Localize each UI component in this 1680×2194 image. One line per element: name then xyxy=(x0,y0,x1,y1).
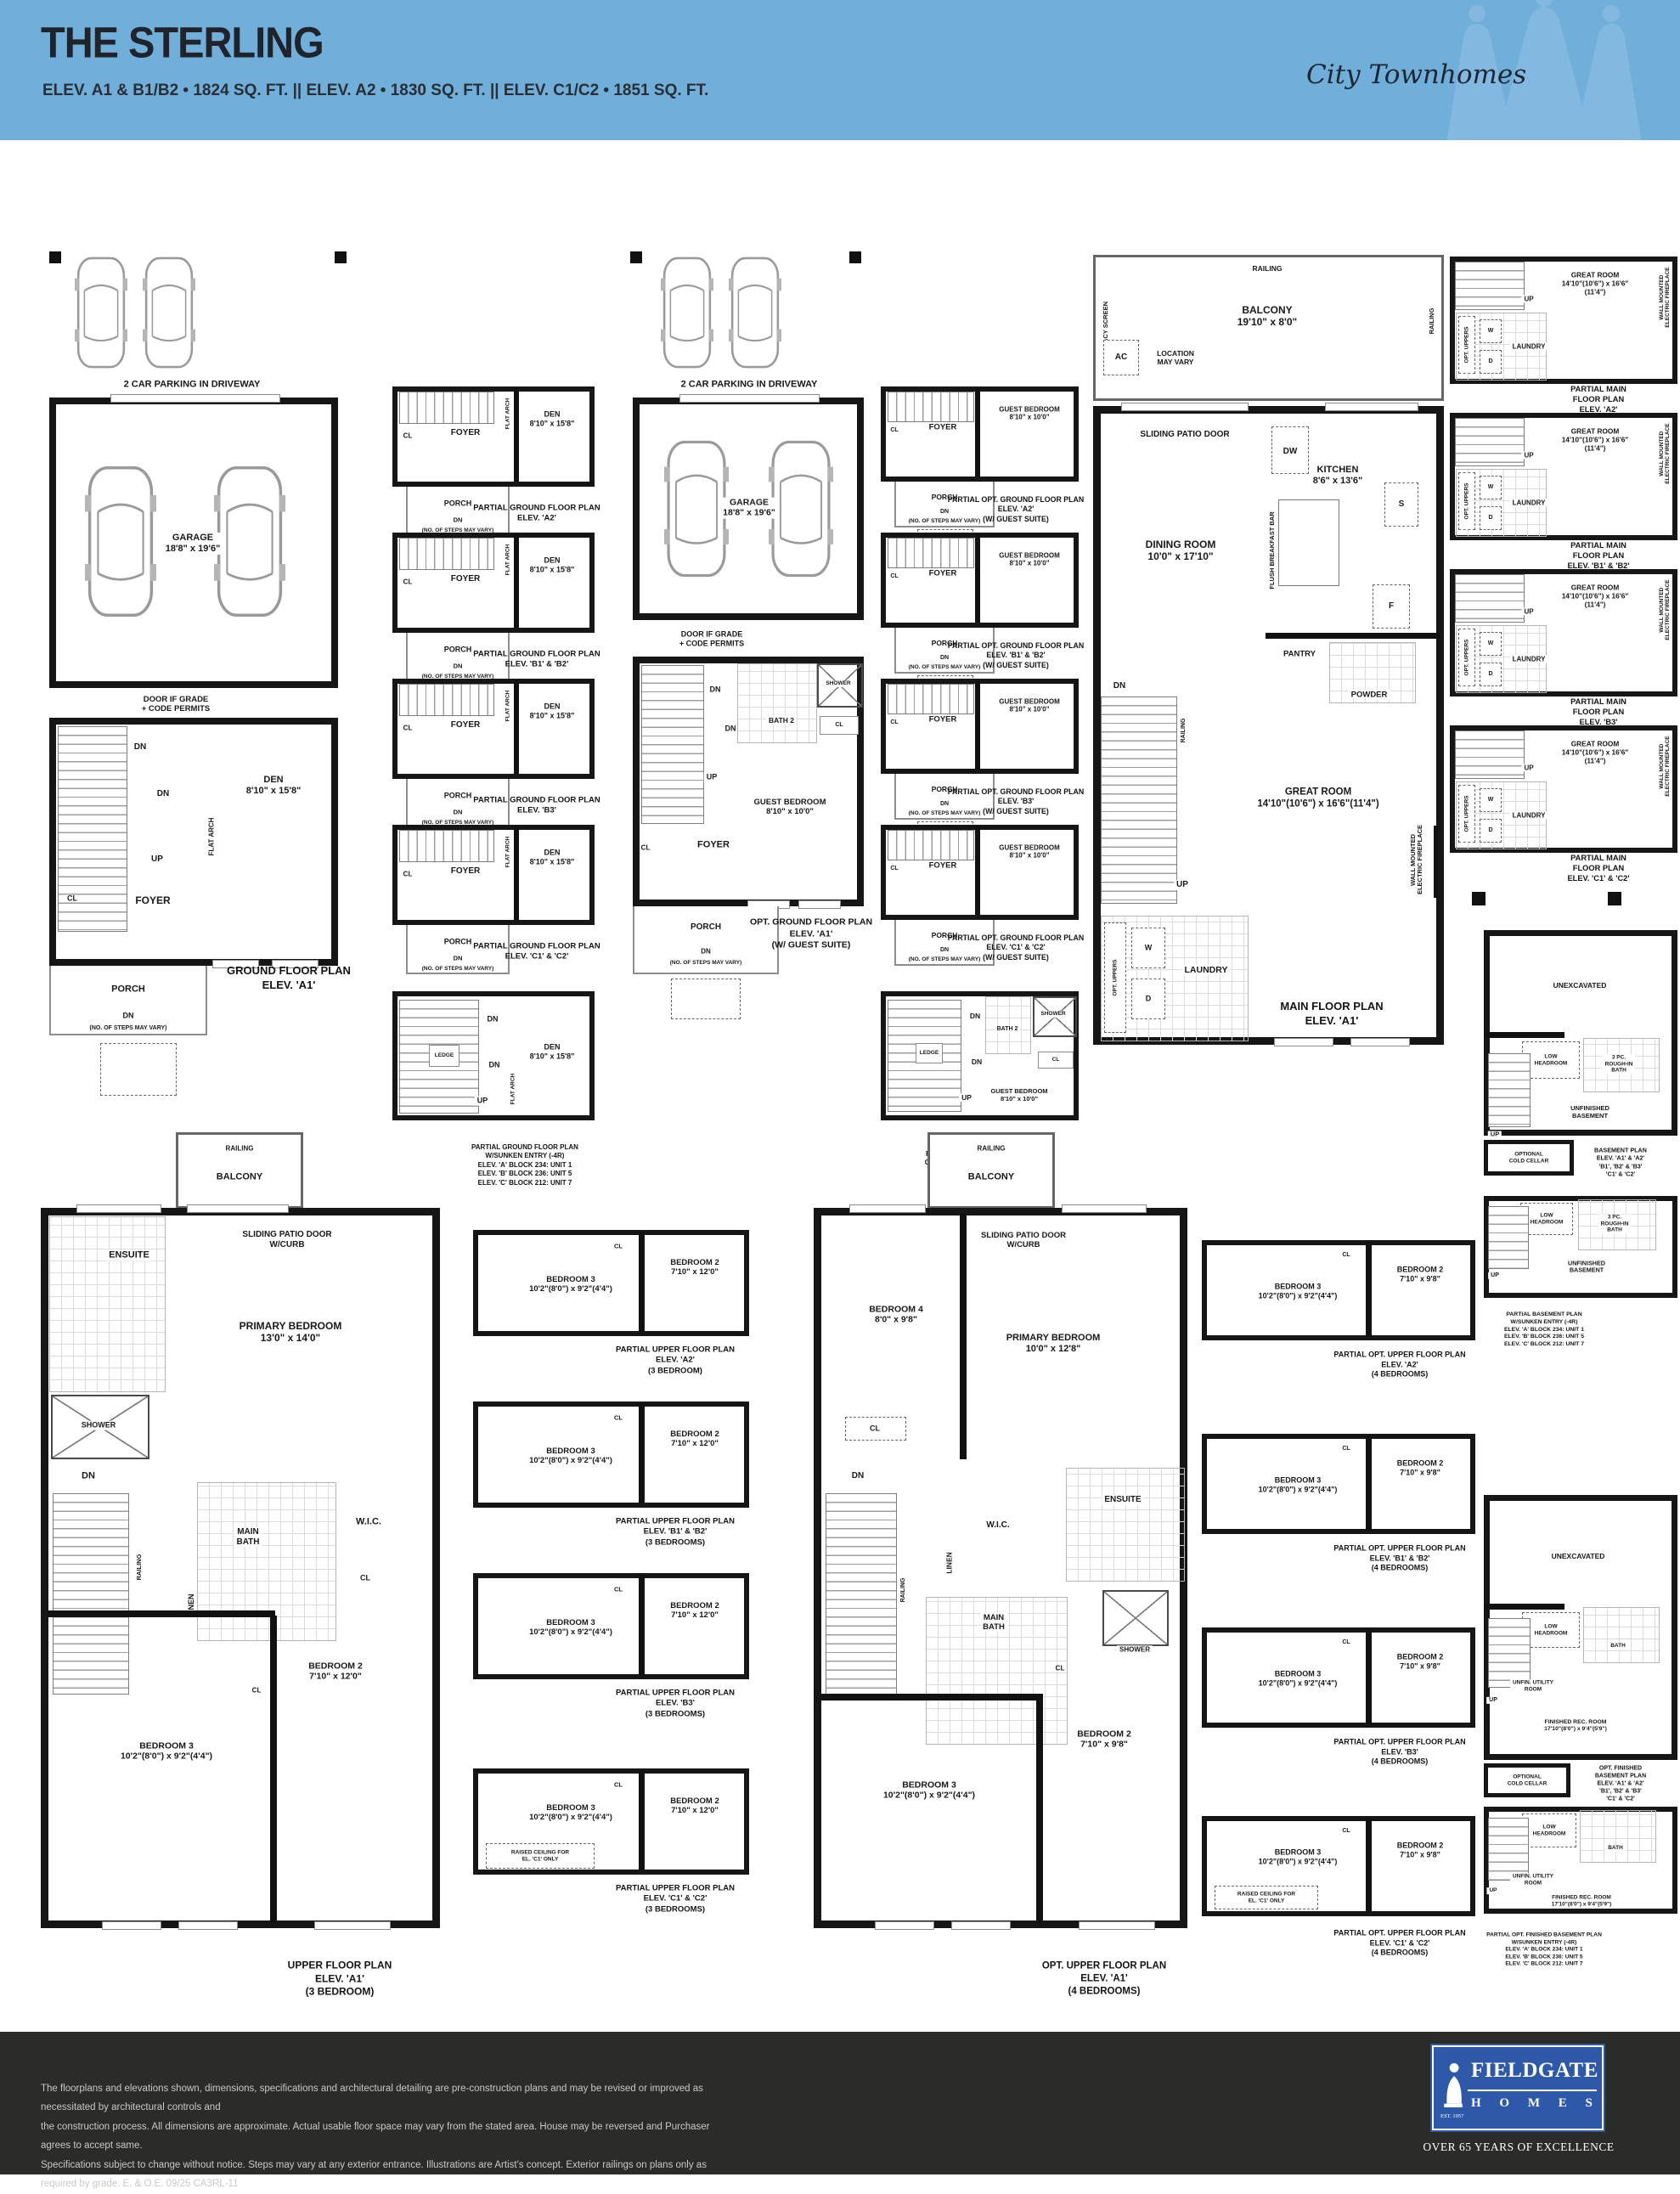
stairs xyxy=(399,830,494,862)
room-label: CL xyxy=(67,894,77,904)
room-label: BEDROOM 3 10'2"(8'0") x 9'2"(4'4") xyxy=(1259,1282,1338,1300)
room-label: UNEXCAVATED xyxy=(1552,1552,1605,1560)
room-label: GUEST BEDROOM 8'10" x 10'0" xyxy=(999,844,1060,860)
room-label: RAISED CEILING FOR EL. 'C1' ONLY xyxy=(1237,1891,1295,1904)
wall xyxy=(514,534,519,628)
room-label: GARAGE 18'8" x 19'6" xyxy=(163,533,223,555)
entry-steps xyxy=(100,1043,177,1096)
room-label: CL xyxy=(403,870,413,877)
plan-title: PARTIAL OPT. UPPER FLOOR PLAN ELEV. 'B1'… xyxy=(1333,1543,1465,1573)
room-label: DN xyxy=(487,1061,503,1070)
room-label: FOYER xyxy=(929,568,957,578)
corner-mark xyxy=(1608,892,1621,905)
room-label: CL xyxy=(641,843,651,851)
room-label: CL xyxy=(1342,1828,1350,1835)
room-label: DOOR IF GRADE + CODE PERMITS xyxy=(142,695,211,713)
room-label: UNFINISHED BASEMENT xyxy=(1568,1261,1605,1275)
room-label: LAUNDRY xyxy=(1182,965,1231,975)
room-label: GREAT ROOM 14'10"(10'6") x 16'6"(11'4") xyxy=(1553,271,1638,296)
room-label: CL xyxy=(1342,1639,1350,1646)
room-label: LAUNDRY xyxy=(1510,655,1548,663)
wall xyxy=(639,1403,645,1503)
room-label: SHOWER xyxy=(1117,1645,1153,1653)
room-label: (NO. OF STEPS MAY VARY) xyxy=(89,1025,166,1032)
room-label: RAILING xyxy=(226,1144,254,1152)
car-icon xyxy=(769,416,833,601)
stairs xyxy=(53,1493,129,1695)
room-label: DEN 8'10" x 15'8" xyxy=(530,409,575,427)
room-label: PORCH xyxy=(444,792,472,801)
room-label: CL xyxy=(403,431,413,439)
bath-floor xyxy=(1583,1607,1660,1663)
stairs xyxy=(1488,1206,1529,1269)
stairs xyxy=(1488,1618,1531,1688)
room-label: FLAT ARCH xyxy=(209,818,217,856)
room-label: WALL MOUNTED ELECTRIC FIREPLACE xyxy=(1659,579,1671,640)
room-label: BEDROOM 3 10'2"(8'0") x 9'2"(4'4") xyxy=(1259,1847,1338,1865)
room-label: BEDROOM 2 7'10" x 12'0" xyxy=(670,1430,719,1448)
room-label: LEDGE xyxy=(435,1052,454,1059)
room-label: PORCH xyxy=(444,938,472,947)
wall xyxy=(1036,1694,1043,1923)
wall xyxy=(1366,1629,1372,1724)
fireplace xyxy=(1434,826,1438,898)
room-label: FOYER xyxy=(697,840,730,851)
wall xyxy=(270,1616,277,1923)
room-label: PORCH xyxy=(111,984,145,995)
stairs xyxy=(1101,697,1177,904)
room-label: D xyxy=(1143,995,1154,1004)
bath-floor xyxy=(737,663,817,743)
room-label: BEDROOM 2 7'10" x 9'8" xyxy=(1397,1265,1444,1283)
room-label: RAISED CEILING FOR EL. 'C1' ONLY xyxy=(511,1849,569,1862)
room-label: FLAT ARCH xyxy=(505,691,510,721)
room-label: FOYER xyxy=(929,714,957,724)
room-label: DEN 8'10" x 15'8" xyxy=(530,556,575,573)
room-label: UP xyxy=(1488,1272,1502,1279)
plan-title: PARTIAL OPT. UPPER FLOOR PLAN ELEV. 'A2'… xyxy=(1333,1350,1465,1379)
room-label: RAILING xyxy=(1253,264,1283,273)
plan-partial-opt-upper-b1-b2 xyxy=(1202,1434,1475,1534)
room-label: UNFIN. UTILITY ROOM xyxy=(1510,1873,1556,1886)
room-label: SLIDING PATIO DOOR xyxy=(1140,430,1229,440)
room-label: UP xyxy=(1174,880,1191,890)
wall xyxy=(975,680,980,769)
room-label: UP xyxy=(704,773,720,782)
car-icon xyxy=(664,416,729,601)
wall xyxy=(639,1770,645,1870)
room-label: CL xyxy=(1052,1057,1060,1063)
room-label: SLIDING PATIO DOOR W/CURB xyxy=(242,1230,331,1250)
room-label: W xyxy=(1486,797,1497,804)
room-label: BATH 2 xyxy=(995,1026,1021,1033)
plan-title: PARTIAL OPT. GROUND FLOOR PLAN ELEV. 'B1… xyxy=(948,641,1084,670)
wall xyxy=(514,388,519,482)
wall xyxy=(514,680,519,774)
wall xyxy=(975,388,980,477)
room-label: WALL MOUNTED ELECTRIC FIREPLACE xyxy=(1659,423,1671,483)
room-label: BEDROOM 3 10'2"(8'0") x 9'2"(4'4") xyxy=(121,1741,212,1763)
wall xyxy=(1366,1242,1372,1337)
plan-partial-opt-upper-b3 xyxy=(1202,1627,1475,1728)
wall xyxy=(1366,1435,1372,1531)
room-label: MAIN BATH xyxy=(980,1613,1007,1632)
room-label: UP xyxy=(1521,295,1536,302)
ensuite-floor xyxy=(1066,1468,1185,1582)
room-label: DN xyxy=(701,947,711,955)
room-label: SHOWER xyxy=(79,1421,119,1430)
window xyxy=(1274,1038,1333,1046)
room-label: DN xyxy=(849,1471,866,1481)
car-icon xyxy=(661,253,713,372)
room-label: 3 PC. ROUGH-IN BATH xyxy=(1603,1055,1636,1074)
room-label: BEDROOM 2 7'10" x 12'0" xyxy=(670,1258,719,1277)
plan-title: PARTIAL MAIN FLOOR PLAN ELEV. 'B1' & 'B2… xyxy=(1558,540,1639,571)
room-label: DN xyxy=(454,809,463,817)
room-label: GUEST BEDROOM 8'10" x 10'0" xyxy=(754,798,826,816)
room-label: BEDROOM 3 10'2"(8'0") x 9'2"(4'4") xyxy=(529,1275,612,1294)
room-label: FLAT ARCH xyxy=(505,544,510,575)
plan-title: PARTIAL UPPER FLOOR PLAN ELEV. 'B1' & 'B… xyxy=(616,1516,735,1548)
plan-title: OPT. UPPER FLOOR PLAN ELEV. 'A1' (4 BEDR… xyxy=(1042,1960,1166,1999)
room-label: CL xyxy=(614,1415,623,1423)
plan-title: PARTIAL UPPER FLOOR PLAN ELEV. 'C1' & 'C… xyxy=(616,1883,735,1915)
stairs xyxy=(399,392,494,424)
room-label: CL xyxy=(1342,1252,1350,1259)
plan-title: PARTIAL OPT. UPPER FLOOR PLAN ELEV. 'C1'… xyxy=(1333,1928,1465,1958)
stairs xyxy=(1455,418,1525,466)
room-label: CL xyxy=(614,1587,623,1594)
room-label: FOYER xyxy=(929,860,957,870)
room-label: BALCONY xyxy=(968,1172,1014,1183)
room-label: FINISHED REC. ROOM 17'10"(8'0") x 9'4"(5… xyxy=(1552,1894,1612,1907)
car-icon xyxy=(214,425,285,658)
room-label: UP xyxy=(1488,1131,1502,1139)
room-label: FLAT ARCH xyxy=(510,1074,516,1104)
room-label: SHOWER xyxy=(1038,1011,1068,1018)
room-label: CL xyxy=(870,1424,880,1434)
room-label: GREAT ROOM 14'10"(10'6") x 16'6"(11'4") xyxy=(1257,787,1378,809)
room-label: DN xyxy=(123,1012,134,1021)
island xyxy=(1278,499,1339,586)
room-label: DOOR IF GRADE + CODE PERMITS xyxy=(677,629,747,647)
plan-title: PARTIAL OPT. GROUND FLOOR PLAN ELEV. 'A2… xyxy=(948,495,1084,524)
room-label: LAUNDRY xyxy=(1510,499,1548,506)
room-label: FOYER xyxy=(451,574,480,584)
room-label: LAUNDRY xyxy=(1510,342,1548,350)
room-label: FOYER xyxy=(451,866,480,877)
corner-mark xyxy=(335,251,347,263)
wall xyxy=(639,1232,645,1332)
plan-partial-opt-upper-a2 xyxy=(1202,1240,1475,1340)
wall xyxy=(1266,633,1440,639)
plan-title: PARTIAL BASEMENT PLAN W/SUNKEN ENTRY (-4… xyxy=(1504,1311,1584,1349)
room-label: ENSUITE xyxy=(106,1250,152,1261)
plan-title: BASEMENT PLAN ELEV. 'A1' & 'A2' 'B1', 'B… xyxy=(1594,1146,1647,1177)
plan-title: PARTIAL GROUND FLOOR PLAN ELEV. 'B3' xyxy=(473,796,600,817)
corner-mark xyxy=(49,251,61,263)
room-label: D xyxy=(1486,671,1495,678)
room-label: UP xyxy=(959,1093,974,1102)
plan-title: PARTIAL UPPER FLOOR PLAN ELEV. 'A2' (3 B… xyxy=(616,1345,735,1376)
room-label: LOCATION MAY VARY xyxy=(1157,349,1194,366)
plan-title: OPT. GROUND FLOOR PLAN ELEV. 'A1' (W/ GU… xyxy=(750,917,872,952)
room-label: GREAT ROOM 14'10"(10'6") x 16'6"(11'4") xyxy=(1553,740,1638,764)
room-label: OPT. UPPERS xyxy=(1463,796,1469,832)
room-label: DN xyxy=(723,725,739,734)
room-label: UP xyxy=(1521,607,1536,615)
logo-est: EST. 1957 xyxy=(1440,2113,1463,2119)
room-label: UNFINISHED BASEMENT xyxy=(1570,1105,1610,1120)
room-label: BATH 2 xyxy=(766,716,797,725)
room-label: DINING ROOM 10'0" x 17'10" xyxy=(1146,539,1216,562)
wall xyxy=(639,1575,645,1675)
room-label: BEDROOM 2 7'10" x 9'8" xyxy=(1397,1841,1444,1858)
room-label: LOW HEADROOM xyxy=(1531,1824,1569,1836)
room-label: GUEST BEDROOM 8'10" x 10'0" xyxy=(999,406,1060,422)
room-label: RAILING xyxy=(1181,719,1187,743)
plan-title: PARTIAL GROUND FLOOR PLAN ELEV. 'B1' & '… xyxy=(473,650,600,671)
room-label: DEN 8'10" x 15'8" xyxy=(530,702,575,719)
room-label: PRIMARY BEDROOM 10'0" x 12'8" xyxy=(1006,1333,1101,1355)
window xyxy=(849,1204,926,1213)
room-label: BALCONY 19'10" x 8'0" xyxy=(1237,304,1297,328)
plan-title: PARTIAL OPT. FINISHED BASEMENT PLAN W/SU… xyxy=(1486,1932,1602,1969)
room-label: PANTRY xyxy=(1281,649,1318,658)
room-label: 2 CAR PARKING IN DRIVEWAY xyxy=(124,380,261,391)
room-label: GARAGE 18'8" x 19'6" xyxy=(720,498,778,519)
entry-steps xyxy=(671,979,741,1019)
floorplan-brochure-page: { "header": { "title": "THE STERLING", "… xyxy=(0,0,1680,2174)
room-label: FINISHED REC. ROOM 17'10"(8'0") x 9'4"(5… xyxy=(1544,1719,1607,1733)
disclaimer-text: The floorplans and elevations shown, dim… xyxy=(41,2079,720,2194)
room-label: DN xyxy=(132,742,149,753)
shower xyxy=(1102,1590,1169,1646)
room-label: D xyxy=(1486,515,1495,522)
room-label: BEDROOM 2 7'10" x 12'0" xyxy=(308,1661,363,1683)
room-label: UNFIN. UTILITY ROOM xyxy=(1510,1679,1556,1692)
window xyxy=(951,1921,1011,1930)
room-label: BEDROOM 3 10'2"(8'0") x 9'2"(4'4") xyxy=(1259,1475,1338,1493)
stairs xyxy=(888,684,974,714)
room-label: BEDROOM 3 10'2"(8'0") x 9'2"(4'4") xyxy=(529,1447,612,1465)
room-label: CL xyxy=(1342,1446,1350,1452)
wall xyxy=(1484,1032,1564,1038)
room-label: DN xyxy=(155,789,172,799)
ensuite-floor xyxy=(49,1216,166,1392)
room-label: W xyxy=(1142,944,1155,953)
room-label: UNEXCAVATED xyxy=(1553,981,1607,990)
plan-title: PARTIAL OPT. GROUND FLOOR PLAN ELEV. 'C1… xyxy=(948,933,1084,962)
room-label: DN xyxy=(454,956,463,963)
room-label: BEDROOM 2 7'10" x 9'8" xyxy=(1397,1652,1444,1670)
plan-title: OPT. FINISHED BASEMENT PLAN ELEV. 'A1' &… xyxy=(1591,1764,1650,1802)
plan-title: MAIN FLOOR PLAN ELEV. 'A1' xyxy=(1280,1000,1383,1029)
car-icon xyxy=(729,253,781,372)
room-label: FOYER xyxy=(451,720,480,730)
room-label: CL xyxy=(835,722,843,729)
corner-mark xyxy=(849,251,861,263)
room-label: (NO. OF STEPS MAY VARY) xyxy=(422,966,494,973)
room-label: LOW HEADROOM xyxy=(1528,1212,1566,1225)
room-label: GREAT ROOM 14'10"(10'6") x 16'6"(11'4") xyxy=(1553,584,1638,608)
room-label: PORCH xyxy=(444,499,472,509)
room-label: BATH xyxy=(1605,1845,1626,1852)
room-label: D xyxy=(1486,358,1495,365)
room-label: FLAT ARCH xyxy=(505,398,510,429)
room-label: OPT. UPPERS xyxy=(1463,640,1469,676)
window xyxy=(1121,403,1249,411)
room-label: CL xyxy=(890,573,898,580)
room-label: BEDROOM 2 7'10" x 12'0" xyxy=(670,1796,719,1815)
window xyxy=(178,1921,238,1930)
stairs xyxy=(1488,1818,1529,1881)
room-label: DEN 8'10" x 15'8" xyxy=(246,775,302,797)
room-label: SHOWER xyxy=(823,680,853,687)
room-label: FLUSH BREAKFAST BAR xyxy=(1269,511,1276,589)
room-label: BATH xyxy=(1608,1643,1628,1650)
stairs xyxy=(888,538,974,568)
room-label: CL xyxy=(890,719,898,726)
wall xyxy=(1484,1604,1564,1610)
room-label: CL xyxy=(1056,1664,1065,1672)
plan-title: PARTIAL MAIN FLOOR PLAN ELEV. 'A2' xyxy=(1558,384,1639,415)
room-label: LEDGE xyxy=(920,1050,939,1057)
room-label: DN xyxy=(79,1471,98,1482)
room-label: W.I.C. xyxy=(356,1517,381,1528)
room-label: CL xyxy=(614,1782,623,1790)
stairs xyxy=(641,665,704,824)
room-label: DW xyxy=(1281,447,1300,457)
room-label: BALCONY xyxy=(217,1172,262,1183)
window xyxy=(798,900,841,909)
room-label: KITCHEN 8'6" x 13'6" xyxy=(1313,465,1362,487)
room-label: DN xyxy=(454,517,463,525)
room-label: RAILING xyxy=(1429,308,1435,335)
room-label: ENSUITE xyxy=(1102,1495,1143,1505)
garage-door xyxy=(110,394,280,403)
wall xyxy=(975,534,980,623)
room-label: CL xyxy=(360,1574,370,1583)
room-label: PRIMARY BEDROOM 13'0" x 14'0" xyxy=(240,1320,342,1344)
room-label: FOYER xyxy=(929,422,957,431)
room-label: DN xyxy=(1111,681,1128,691)
plan-title: PARTIAL UPPER FLOOR PLAN ELEV. 'B3' (3 B… xyxy=(616,1688,735,1719)
room-label: OPT. UPPERS xyxy=(1463,327,1469,364)
room-label: RAILING xyxy=(978,1144,1006,1152)
stairs xyxy=(1488,1053,1531,1127)
room-label: OPT. UPPERS xyxy=(1112,960,1118,996)
room-label: LAUNDRY xyxy=(1510,811,1548,819)
window xyxy=(314,1921,391,1930)
room-label: PORCH xyxy=(444,646,472,655)
plan-title: PARTIAL GROUND FLOOR PLAN W/SUNKEN ENTRY… xyxy=(471,1143,578,1187)
fieldgate-logo: FIELDGATE H O M E S EST. 1957 xyxy=(1432,2045,1604,2130)
header-banner: THE STERLING ELEV. A1 & B1/B2 • 1824 SQ.… xyxy=(0,0,1680,140)
wall xyxy=(514,826,519,920)
corner-mark xyxy=(1472,892,1486,905)
garage-door xyxy=(679,394,820,403)
room-label: F xyxy=(1389,601,1394,612)
wall xyxy=(960,1213,967,1459)
room-label: D xyxy=(1486,827,1495,834)
window xyxy=(1079,1921,1155,1930)
room-label: (NO. OF STEPS MAY VARY) xyxy=(670,960,742,967)
room-label: DEN 8'10" x 15'8" xyxy=(530,848,575,866)
plan-title: PARTIAL OPT. UPPER FLOOR PLAN ELEV. 'B3'… xyxy=(1333,1737,1465,1767)
room-label: OPT. UPPERS xyxy=(1463,483,1469,520)
logo-divider xyxy=(1468,2090,1597,2091)
room-label: WALL MOUNTED ELECTRIC FIREPLACE xyxy=(1410,825,1424,894)
wall xyxy=(48,1610,275,1617)
elevation-subtitle: ELEV. A1 & B1/B2 • 1824 SQ. FT. || ELEV.… xyxy=(42,82,708,100)
room-label: UP xyxy=(1521,451,1536,459)
room-label: UP xyxy=(1486,1697,1500,1704)
room-label: BEDROOM 2 7'10" x 12'0" xyxy=(670,1601,719,1620)
wall xyxy=(1366,1818,1372,1913)
room-label: W xyxy=(1486,640,1497,647)
room-label: BEDROOM 3 10'2"(8'0") x 9'2"(4'4") xyxy=(883,1780,975,1802)
window xyxy=(875,1921,934,1930)
room-label: UP xyxy=(149,854,166,865)
room-label: W.I.C. xyxy=(986,1520,1009,1531)
room-label: GUEST BEDROOM 8'10" x 10'0" xyxy=(999,552,1060,568)
room-label: CL xyxy=(614,1244,623,1251)
room-label: DN xyxy=(969,1058,984,1066)
plan-title: PARTIAL GROUND FLOOR PLAN ELEV. 'A2' xyxy=(473,504,600,525)
room-label: PORCH xyxy=(691,922,721,933)
room-label: MAIN BATH xyxy=(234,1527,262,1548)
room-label: BEDROOM 2 7'10" x 9'8" xyxy=(1397,1458,1444,1476)
room-label: FOYER xyxy=(451,428,480,438)
room-label: CL xyxy=(890,427,898,434)
room-label: WALL MOUNTED ELECTRIC FIREPLACE xyxy=(1659,736,1671,796)
plan-title: GROUND FLOOR PLAN ELEV. 'A1' xyxy=(227,964,351,993)
room-label: UP xyxy=(475,1097,491,1106)
window xyxy=(76,1204,161,1213)
window xyxy=(1062,1204,1147,1213)
room-label: DN xyxy=(708,685,724,695)
car-icon xyxy=(85,425,156,658)
stairs xyxy=(1455,574,1525,623)
wall xyxy=(820,1694,1041,1700)
brand-script: City Townhomes xyxy=(1306,59,1526,90)
room-label: LOW HEADROOM xyxy=(1532,1053,1570,1066)
room-label: UP xyxy=(1486,1887,1499,1894)
page-title: THE STERLING xyxy=(41,17,324,67)
room-label: GUEST BEDROOM 8'10" x 10'0" xyxy=(999,698,1060,714)
stairs xyxy=(1455,262,1525,310)
room-label: BEDROOM 3 10'2"(8'0") x 9'2"(4'4") xyxy=(529,1803,612,1822)
window xyxy=(1350,1038,1410,1046)
room-label: GREAT ROOM 14'10"(10'6") x 16'6"(11'4") xyxy=(1553,427,1638,452)
wall xyxy=(975,826,980,915)
corner-mark xyxy=(630,251,642,263)
stairs xyxy=(399,684,494,716)
window xyxy=(102,1921,161,1930)
logo-figure-icon xyxy=(1442,2061,1464,2110)
logo-name: FIELDGATE xyxy=(1471,2059,1598,2083)
plan-title: PARTIAL GROUND FLOOR PLAN ELEV. 'C1' & '… xyxy=(473,942,600,963)
room-label: CL xyxy=(403,724,413,731)
car-icon xyxy=(75,253,127,372)
room-label: DEN 8'10" x 15'8" xyxy=(530,1042,575,1060)
room-label: RAILING xyxy=(136,1554,143,1581)
room-label: FLAT ARCH xyxy=(505,837,510,867)
stairs xyxy=(888,830,974,860)
room-label: FOYER xyxy=(135,894,170,906)
room-label: SLIDING PATIO DOOR W/CURB xyxy=(981,1231,1066,1249)
